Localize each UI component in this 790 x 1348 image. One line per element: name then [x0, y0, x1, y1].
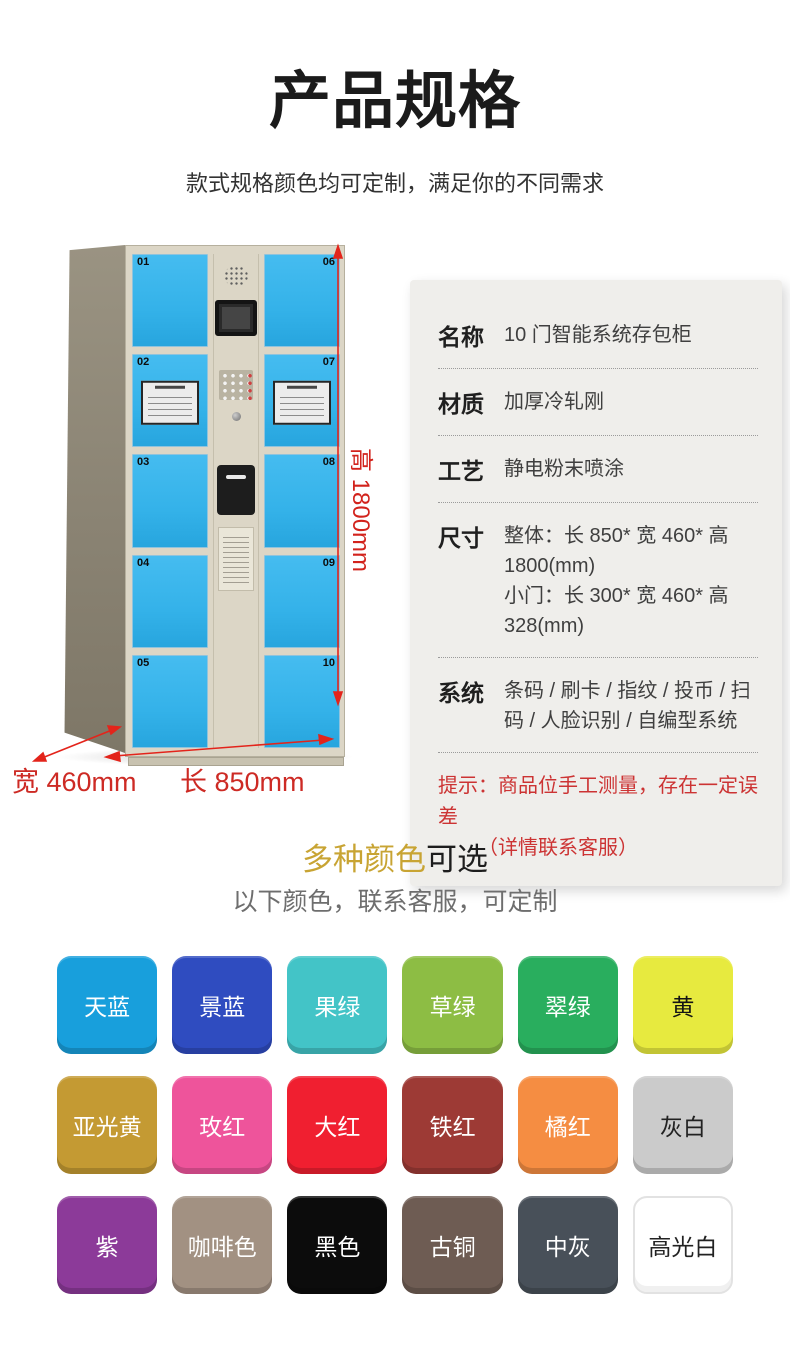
- color-swatch-景蓝: 景蓝: [172, 956, 272, 1054]
- dimension-arrows: [0, 230, 400, 810]
- colors-subtitle: 以下颜色，联系客服，可定制: [0, 882, 790, 918]
- page-subtitle: 款式规格颜色均可定制，满足你的不同需求: [0, 166, 790, 198]
- locker-product-image: 0102030405 0607080910 高 1800mm 宽: [0, 230, 400, 810]
- color-swatch-玫红: 玫红: [172, 1076, 272, 1174]
- size-overall: 整体：长 850* 宽 460* 高 1800(mm): [504, 521, 758, 581]
- spec-value: 整体：长 850* 宽 460* 高 1800(mm) 小门：长 300* 宽 …: [504, 519, 758, 641]
- spec-value: 10 门智能系统存包柜: [504, 318, 692, 350]
- spec-value: 条码 / 刷卡 / 指纹 / 投币 / 扫码 / 人脸识别 / 自编型系统: [504, 674, 758, 736]
- color-swatch-黄: 黄: [633, 956, 733, 1054]
- color-swatch-橘红: 橘红: [518, 1076, 618, 1174]
- color-swatch-翠绿: 翠绿: [518, 956, 618, 1054]
- page-title: 产品规格: [0, 50, 790, 140]
- spec-panel: 名称 10 门智能系统存包柜 材质 加厚冷轧刚 工艺 静电粉末喷涂 尺寸 整体：…: [410, 280, 782, 886]
- color-swatch-亚光黄: 亚光黄: [57, 1076, 157, 1174]
- color-swatch-紫: 紫: [57, 1196, 157, 1294]
- spec-row-system: 系统 条码 / 刷卡 / 指纹 / 投币 / 扫码 / 人脸识别 / 自编型系统: [438, 658, 758, 752]
- spec-label: 名称: [438, 318, 504, 352]
- color-swatch-草绿: 草绿: [402, 956, 502, 1054]
- color-swatch-铁红: 铁红: [402, 1076, 502, 1174]
- colors-heading: 多种颜色可选: [0, 834, 790, 879]
- width-dimension-label: 宽 460mm: [12, 760, 137, 799]
- spec-row-size: 尺寸 整体：长 850* 宽 460* 高 1800(mm) 小门：长 300*…: [438, 503, 758, 657]
- spec-label: 尺寸: [438, 519, 504, 553]
- spec-row-material: 材质 加厚冷轧刚: [438, 369, 758, 435]
- colors-heading-rest: 可选: [426, 842, 488, 877]
- spec-label: 工艺: [438, 452, 504, 486]
- color-swatch-中灰: 中灰: [518, 1196, 618, 1294]
- color-swatch-大红: 大红: [287, 1076, 387, 1174]
- spec-row-name: 名称 10 门智能系统存包柜: [438, 302, 758, 368]
- color-swatch-古铜: 古铜: [402, 1196, 502, 1294]
- spec-row-craft: 工艺 静电粉末喷涂: [438, 436, 758, 502]
- color-swatch-果绿: 果绿: [287, 956, 387, 1054]
- length-dimension-label: 长 850mm: [180, 760, 305, 799]
- spec-label: 材质: [438, 385, 504, 419]
- height-dimension-label: 高 1800mm: [346, 448, 381, 572]
- color-swatch-咖啡色: 咖啡色: [172, 1196, 272, 1294]
- spec-label: 系统: [438, 674, 504, 708]
- color-swatch-黑色: 黑色: [287, 1196, 387, 1294]
- color-grid: 天蓝景蓝果绿草绿翠绿黄亚光黄玫红大红铁红橘红灰白紫咖啡色黑色古铜中灰高光白: [57, 956, 733, 1294]
- note-line-1: 提示：商品位手工测量，存在一定误差: [438, 771, 758, 833]
- spec-value: 加厚冷轧刚: [504, 385, 604, 417]
- color-swatch-天蓝: 天蓝: [57, 956, 157, 1054]
- color-swatch-高光白: 高光白: [633, 1196, 733, 1294]
- colors-heading-highlight: 多种颜色: [302, 842, 426, 877]
- color-swatch-灰白: 灰白: [633, 1076, 733, 1174]
- spec-value: 静电粉末喷涂: [504, 452, 624, 484]
- size-small-door: 小门：长 300* 宽 460* 高 328(mm): [504, 581, 758, 641]
